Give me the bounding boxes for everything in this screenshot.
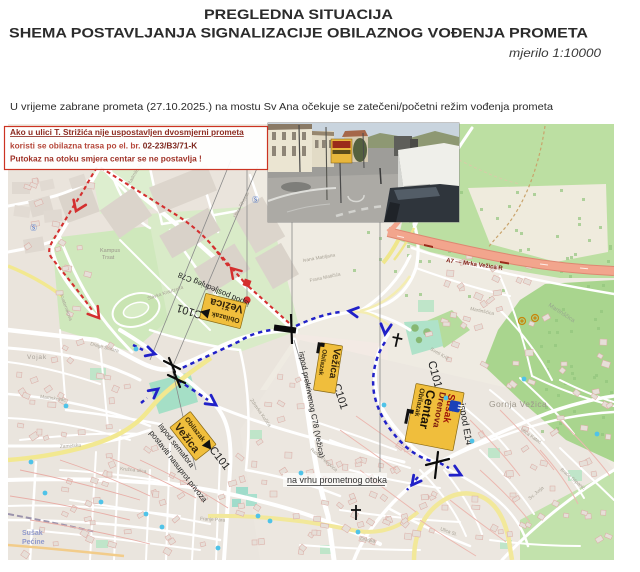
svg-text:Ⓢ: Ⓢ [30, 224, 37, 232]
svg-text:mjerilo 1:10000: mjerilo 1:10000 [509, 46, 601, 60]
svg-text:Gornja Vežica: Gornja Vežica [489, 399, 547, 409]
svg-text:Sušak: Sušak [22, 530, 43, 537]
svg-text:na vrhu prometnog otoka: na vrhu prometnog otoka [287, 475, 387, 485]
svg-text:Vojak: Vojak [27, 354, 47, 361]
svg-text:Ako u ulici T. Strižića nije u: Ako u ulici T. Strižića nije uspostavlje… [10, 127, 244, 137]
svg-text:SHEMA POSTAVLJANJA SIGNALIZACI: SHEMA POSTAVLJANJA SIGNALIZACIJE OBILAZN… [9, 25, 588, 41]
svg-text:PREGLEDNA SITUACIJA: PREGLEDNA SITUACIJA [204, 6, 393, 22]
svg-text:Putokaz na otoku smjera centar: Putokaz na otoku smjera centar se ne pos… [10, 154, 202, 164]
svg-text:Pećine: Pećine [22, 539, 45, 546]
svg-text:Trsat: Trsat [102, 255, 115, 261]
svg-text:U vrijeme zabrane prometa (27.: U vrijeme zabrane prometa (27.10.2025.) … [10, 102, 553, 113]
svg-text:Ⓢ: Ⓢ [252, 196, 259, 204]
svg-text:koristi se obilazna trasa po e: koristi se obilazna trasa po el. br. 02-… [10, 141, 197, 151]
svg-text:Kampus: Kampus [100, 248, 120, 254]
